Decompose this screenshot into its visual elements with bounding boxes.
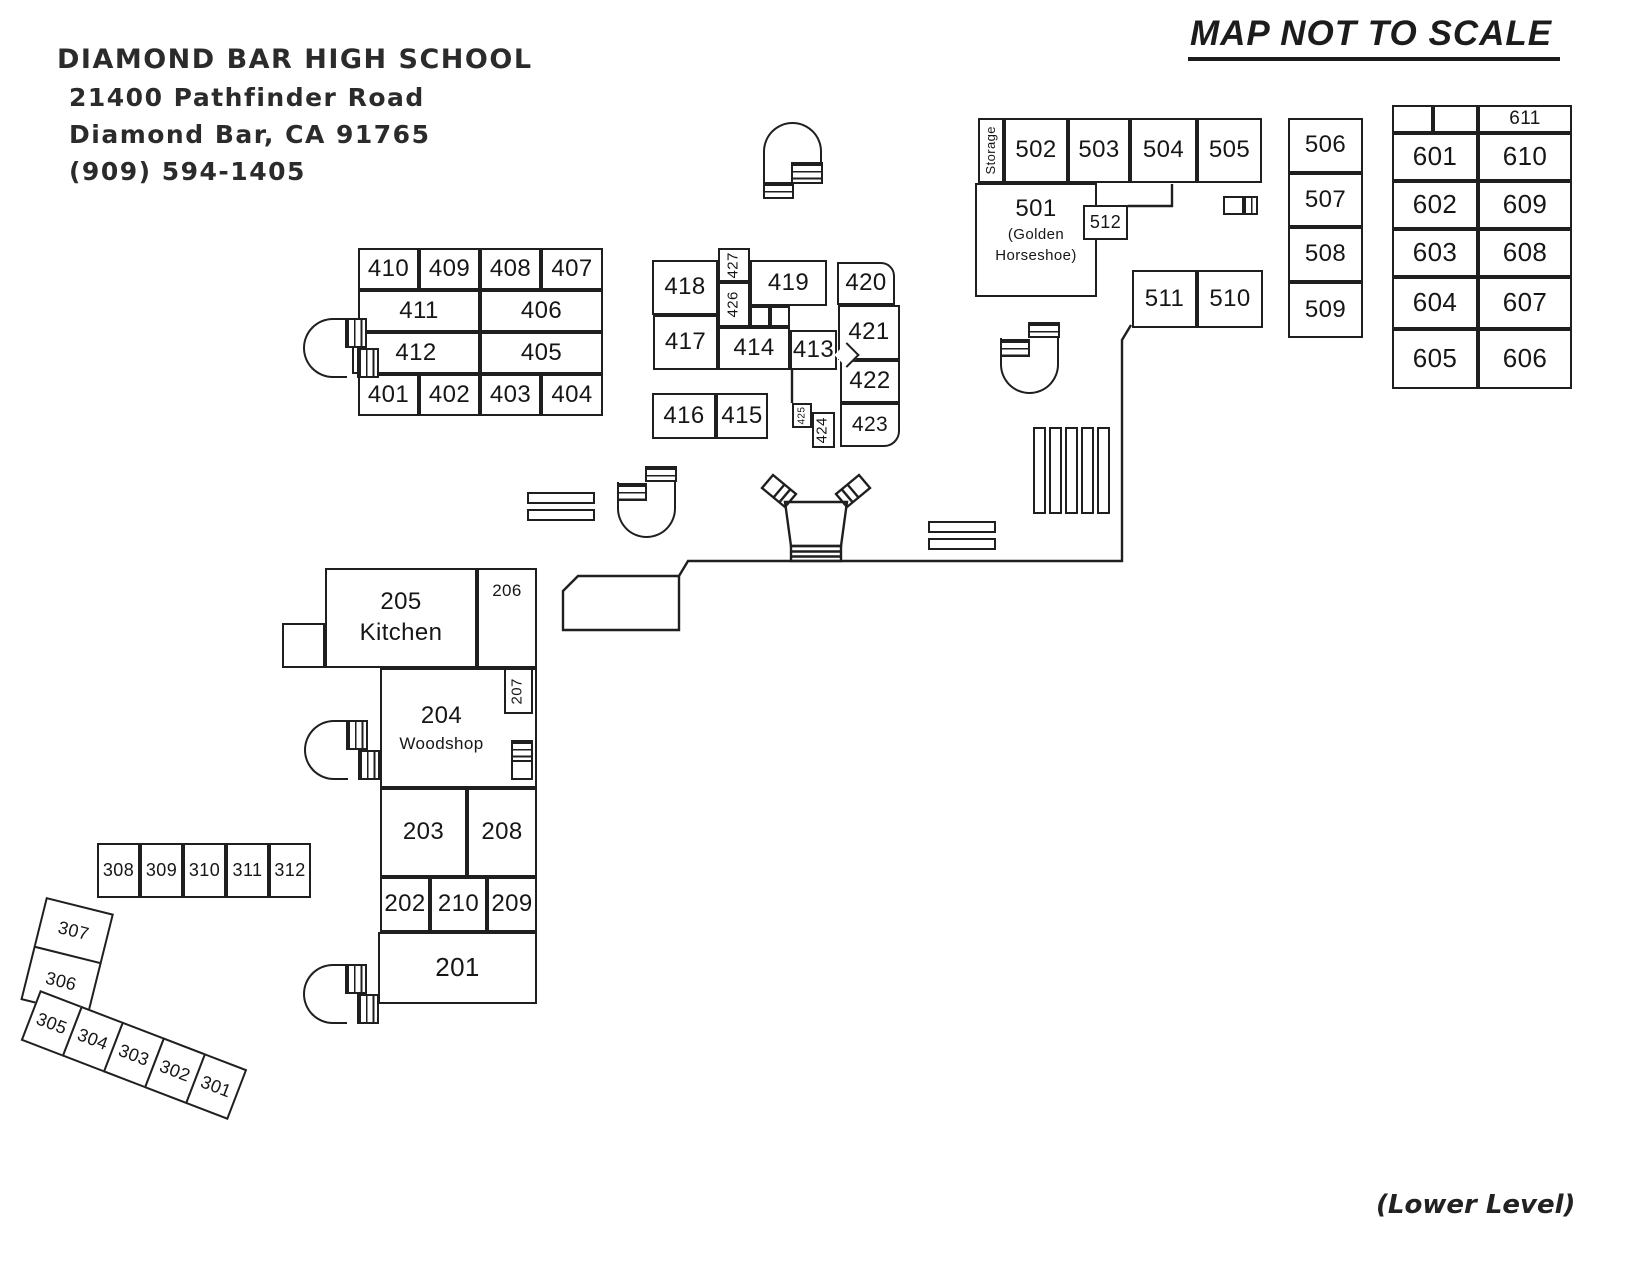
room-label: 509 [1305, 297, 1346, 324]
room-label: 401 [368, 382, 409, 409]
room-609: 609 [1478, 181, 1572, 229]
room-419: 419 [750, 260, 827, 306]
room-sublabel: (Golden [1008, 227, 1064, 244]
room-label: 306 [43, 968, 78, 995]
room-203: 203 [380, 788, 467, 877]
room-label: 426 [726, 291, 743, 317]
room-416: 416 [652, 393, 716, 439]
room-label: 408 [490, 256, 531, 283]
room-label: 403 [490, 382, 531, 409]
room-414: 414 [718, 327, 790, 370]
room-label: 310 [189, 860, 220, 880]
room-404: 404 [541, 374, 603, 416]
room-label: 303 [116, 1040, 152, 1070]
room-storage: Storage [978, 118, 1004, 183]
room-label: 604 [1413, 288, 1458, 317]
room-label: 510 [1209, 286, 1250, 313]
room-511: 511 [1132, 270, 1197, 328]
room-408: 408 [480, 248, 541, 290]
room-label: 206 [492, 581, 522, 600]
room-label: 308 [103, 860, 134, 880]
bench-v-icon [1049, 427, 1062, 514]
room-label: 602 [1413, 190, 1458, 219]
room-label: 202 [384, 891, 425, 918]
room-207: 207 [504, 668, 533, 714]
room-label: 409 [429, 256, 470, 283]
room-label: 501 [1015, 196, 1056, 223]
room-label: 405 [521, 340, 562, 367]
room-label: 508 [1305, 241, 1346, 268]
room-210: 210 [430, 877, 487, 932]
room-407: 407 [541, 248, 603, 290]
room-425: 425 [792, 403, 812, 428]
room-label: 304 [75, 1024, 111, 1054]
room-unlabeled [750, 306, 770, 327]
room-label: 418 [664, 274, 705, 301]
bench-v-icon [1097, 427, 1110, 514]
room-label: 419 [768, 270, 809, 297]
room-420: 420 [837, 262, 895, 305]
room-202: 202 [380, 877, 430, 932]
room-label: 207 [510, 678, 527, 704]
room-label: 605 [1413, 344, 1458, 373]
room-506: 506 [1288, 118, 1363, 173]
room-label: 404 [551, 382, 592, 409]
room-label: 414 [733, 335, 774, 362]
campus-map-lower-level: DIAMOND BAR HIGH SCHOOL 21400 Pathfinder… [0, 0, 1650, 1275]
room-label: 608 [1503, 238, 1548, 267]
room-label: 512 [1090, 212, 1121, 232]
room-418: 418 [652, 260, 718, 315]
room-label: 205 [380, 589, 421, 616]
room-308: 308 [97, 843, 140, 898]
corridor-wall [1128, 184, 1172, 206]
room-607: 607 [1478, 277, 1572, 329]
room-label: 422 [849, 368, 890, 395]
room-label: 407 [551, 256, 592, 283]
room-label: 209 [491, 891, 532, 918]
room-312: 312 [269, 843, 311, 898]
school-name: DIAMOND BAR HIGH SCHOOL [57, 44, 533, 75]
room-402: 402 [419, 374, 480, 416]
room-603: 603 [1392, 229, 1478, 277]
room-label: 423 [852, 413, 888, 437]
room-label: 425 [796, 407, 807, 425]
room-label: 502 [1015, 137, 1056, 164]
room-unlabeled [770, 306, 790, 327]
room-512: 512 [1083, 205, 1128, 240]
room-label: 305 [34, 1008, 70, 1038]
room-label: 208 [481, 819, 522, 846]
room-sublabel: Kitchen [360, 620, 443, 647]
room-426: 426 [718, 282, 750, 327]
room-424: 424 [812, 412, 835, 448]
room-label: 410 [368, 256, 409, 283]
room-label: 504 [1143, 137, 1184, 164]
room-unlabeled [1433, 105, 1478, 133]
room-509: 509 [1288, 282, 1363, 338]
room-label: 311 [233, 860, 263, 880]
lower-level-note: (Lower Level) [1376, 1190, 1575, 1220]
room-label: 302 [157, 1056, 193, 1086]
room-label: 606 [1503, 344, 1548, 373]
school-address-city: Diamond Bar, CA 91765 [69, 120, 533, 149]
room-label: 609 [1503, 190, 1548, 219]
bench-h-icon [527, 509, 595, 521]
room-422: 422 [840, 360, 900, 403]
room-label: 505 [1209, 137, 1250, 164]
room-206: 206 [477, 568, 537, 668]
room-label: 506 [1305, 132, 1346, 159]
room-label: 203 [403, 819, 444, 846]
room-label: 603 [1413, 238, 1458, 267]
room-label: 503 [1078, 137, 1119, 164]
room-504: 504 [1130, 118, 1197, 183]
room-unlabeled [1392, 105, 1433, 133]
room-label: 421 [848, 319, 889, 346]
room-423: 423 [840, 403, 900, 447]
room-label: 413 [793, 337, 834, 364]
room-label: 420 [845, 270, 886, 297]
room-label: 402 [429, 382, 470, 409]
room-208: 208 [467, 788, 537, 877]
room-606: 606 [1478, 329, 1572, 389]
room-503: 503 [1068, 118, 1130, 183]
room-label: 412 [395, 340, 436, 367]
room-602: 602 [1392, 181, 1478, 229]
bench-v-icon [1033, 427, 1046, 514]
room-310: 310 [183, 843, 226, 898]
room-501: 501(GoldenHorseshoe) [975, 183, 1097, 297]
room-label: 312 [274, 860, 305, 880]
room-410: 410 [358, 248, 419, 290]
room-309: 309 [140, 843, 183, 898]
room-sublabel: Woodshop [399, 734, 483, 753]
room-502: 502 [1004, 118, 1068, 183]
map-not-to-scale-note: MAP NOT TO SCALE [1188, 14, 1560, 61]
school-address-street: 21400 Pathfinder Road [69, 83, 533, 112]
room-405: 405 [480, 332, 603, 374]
room-415: 415 [716, 393, 768, 439]
room-409: 409 [419, 248, 480, 290]
room-611: 611 [1478, 105, 1572, 133]
room-label: 511 [1145, 286, 1184, 313]
room-label: 424 [815, 417, 832, 443]
bench-h-icon [928, 538, 996, 550]
bench-h-icon [928, 521, 996, 533]
room-427: 427 [718, 248, 750, 282]
school-address-block: DIAMOND BAR HIGH SCHOOL 21400 Pathfinder… [57, 44, 533, 186]
bench-h-icon [527, 492, 595, 504]
room-401: 401 [358, 374, 419, 416]
bench-v-icon [1081, 427, 1094, 514]
room-label: 507 [1305, 187, 1346, 214]
room-label: 601 [1413, 142, 1458, 171]
room-610: 610 [1478, 133, 1572, 181]
room-label: 415 [721, 403, 762, 430]
room-label: 417 [665, 329, 706, 356]
room-label: 427 [726, 252, 743, 278]
room-411: 411 [358, 290, 480, 332]
room-label: 610 [1503, 142, 1548, 171]
room-505: 505 [1197, 118, 1262, 183]
entry-vestibule-outline [563, 576, 679, 630]
room-413: 413 [790, 330, 837, 370]
bench-v-icon [1065, 427, 1078, 514]
room-unlabeled [282, 623, 325, 668]
room-403: 403 [480, 374, 541, 416]
room-608: 608 [1478, 229, 1572, 277]
room-406: 406 [480, 290, 603, 332]
room-label: 307 [56, 917, 91, 944]
room-label: Storage [984, 126, 999, 174]
room-507: 507 [1288, 173, 1363, 227]
room-205: 205Kitchen [325, 568, 477, 668]
room-label: 204 [421, 703, 462, 730]
room-label: 309 [146, 860, 177, 880]
school-phone: (909) 594-1405 [69, 157, 533, 186]
room-label: 411 [399, 298, 438, 325]
room-sublabel: Horseshoe) [995, 248, 1077, 265]
room-label: 416 [663, 403, 704, 430]
room-label: 611 [1509, 108, 1541, 129]
room-417: 417 [653, 315, 718, 370]
fan-stairwell-icon [762, 475, 870, 561]
room-label: 607 [1503, 288, 1548, 317]
room-label: 210 [438, 891, 479, 918]
room-label: 406 [521, 298, 562, 325]
room-label: 201 [435, 953, 480, 982]
room-201: 201 [378, 932, 537, 1004]
room-604: 604 [1392, 277, 1478, 329]
room-508: 508 [1288, 227, 1363, 282]
room-605: 605 [1392, 329, 1478, 389]
room-label: 301 [198, 1072, 234, 1102]
room-601: 601 [1392, 133, 1478, 181]
room-209: 209 [487, 877, 537, 932]
room-510: 510 [1197, 270, 1263, 328]
room-311: 311 [226, 843, 269, 898]
